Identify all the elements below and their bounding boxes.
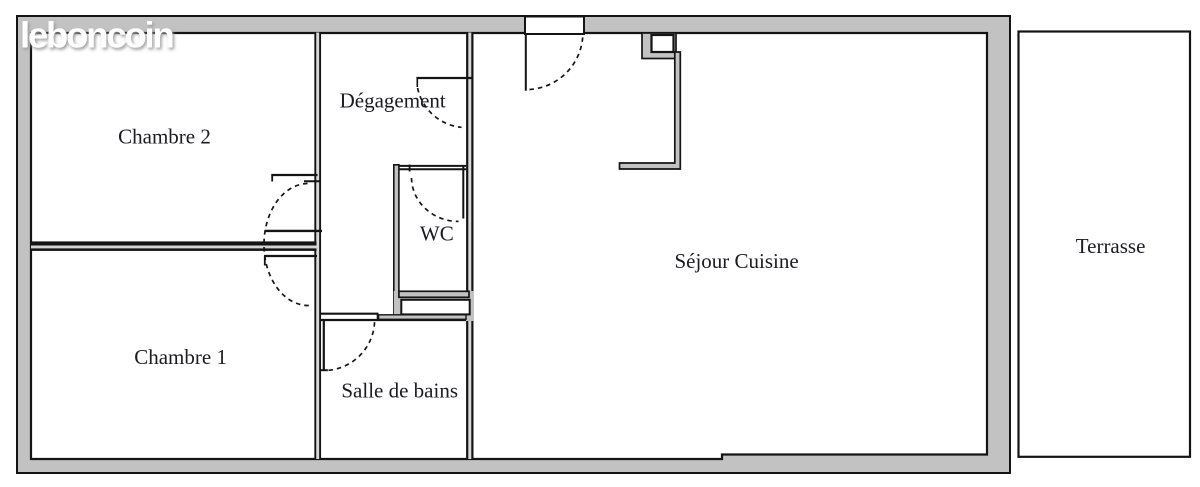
svg-text:Séjour Cuisine: Séjour Cuisine: [674, 249, 798, 273]
svg-text:Dégagement: Dégagement: [340, 89, 446, 113]
svg-text:Chambre 2: Chambre 2: [118, 125, 211, 149]
svg-text:Salle de bains: Salle de bains: [341, 379, 458, 403]
svg-text:leboncoin: leboncoin: [20, 15, 173, 56]
svg-text:WC: WC: [420, 222, 454, 246]
svg-text:Chambre 1: Chambre 1: [134, 345, 227, 369]
svg-text:Terrasse: Terrasse: [1076, 234, 1146, 258]
